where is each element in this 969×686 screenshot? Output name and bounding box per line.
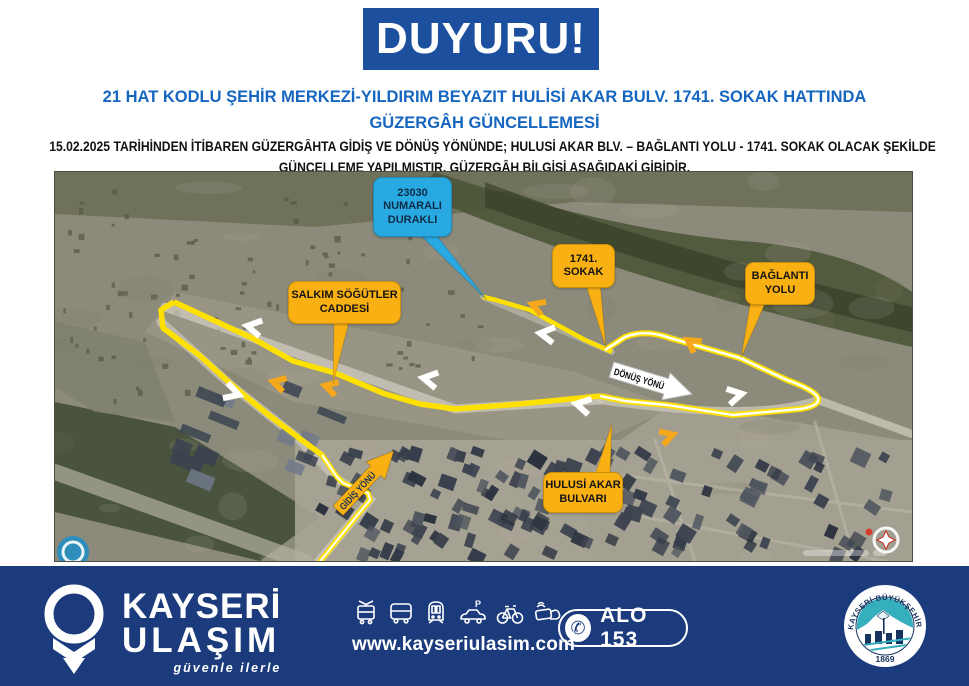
callout-line: BULVARI	[559, 493, 606, 507]
route-heading: 21 HAT KODLU ŞEHİR MERKEZİ-YILDIRIM BEYA…	[0, 84, 969, 136]
brand-line2: ULAŞIM	[122, 624, 281, 658]
hotline-number: ALO 153	[600, 604, 686, 652]
brand-tagline: güvenle ilerle	[122, 661, 281, 675]
seal-year: 1869	[876, 654, 895, 664]
brand-wordmark: KAYSERİ ULAŞIM güvenle ilerle	[122, 590, 281, 675]
description-line1: 15.02.2025 TARİHİNDEN İTİBAREN GÜZERGÂHT…	[49, 136, 936, 157]
kayseri-ulasim-pin-icon	[28, 578, 120, 678]
callout-baglanti-yolu: BAĞLANTI YOLU	[745, 262, 815, 305]
callout-line: HULUSİ AKAR	[545, 479, 620, 493]
banner-title: DUYURU!	[376, 14, 586, 64]
parking-car-icon: P	[458, 598, 488, 626]
website-url: www.kayseriulasim.com	[352, 634, 564, 656]
transit-icons: P	[352, 598, 564, 626]
callout-line: SOKAK	[564, 266, 604, 280]
callout-salkim-sogutler: SALKIM SÖĞÜTLER CADDESİ	[288, 281, 401, 324]
callout-1741-sokak: 1741. SOKAK	[552, 244, 615, 288]
announcement-poster: DUYURU! 21 HAT KODLU ŞEHİR MERKEZİ-YILDI…	[0, 0, 969, 686]
bicycle-icon	[495, 598, 525, 626]
callout-line: YOLU	[765, 284, 796, 298]
bus-icon	[387, 598, 415, 626]
municipality-seal-icon: KAYSERİ BÜYÜKŞEHİR BELEDİYESİ 1869	[843, 584, 927, 668]
callout-line: DURAKLI	[388, 214, 438, 228]
heading-line2: GÜZERGÂH GÜNCELLEMESİ	[0, 110, 969, 136]
callout-line: NUMARALI	[383, 200, 442, 214]
satellite-map-graphic	[55, 172, 912, 561]
callout-line: SALKIM SÖĞÜTLER	[291, 289, 397, 303]
hotline-pill: ✆ ALO 153	[558, 609, 688, 647]
callout-line: BAĞLANTI	[752, 270, 809, 284]
route-map: DÖNÜŞ YÖNÜ GİDİŞ YÖNÜ	[55, 172, 912, 561]
callout-line: 23030	[397, 187, 428, 201]
duyuru-banner: DUYURU!	[363, 8, 599, 70]
heading-line1: 21 HAT KODLU ŞEHİR MERKEZİ-YILDIRIM BEYA…	[0, 84, 969, 110]
callout-stop-23030: 23030 NUMARALI DURAKLI	[373, 177, 452, 237]
metro-icon	[422, 598, 450, 626]
callout-hulusi-akar: HULUSİ AKAR BULVARI	[543, 472, 623, 513]
callout-line: 1741.	[570, 253, 598, 267]
phone-icon: ✆	[565, 614, 591, 642]
tram-icon	[352, 598, 380, 626]
map-watermark	[803, 550, 887, 556]
callout-line: CADDESİ	[320, 303, 370, 317]
svg-text:P: P	[475, 599, 481, 609]
brand-line1: KAYSERİ	[122, 590, 281, 624]
